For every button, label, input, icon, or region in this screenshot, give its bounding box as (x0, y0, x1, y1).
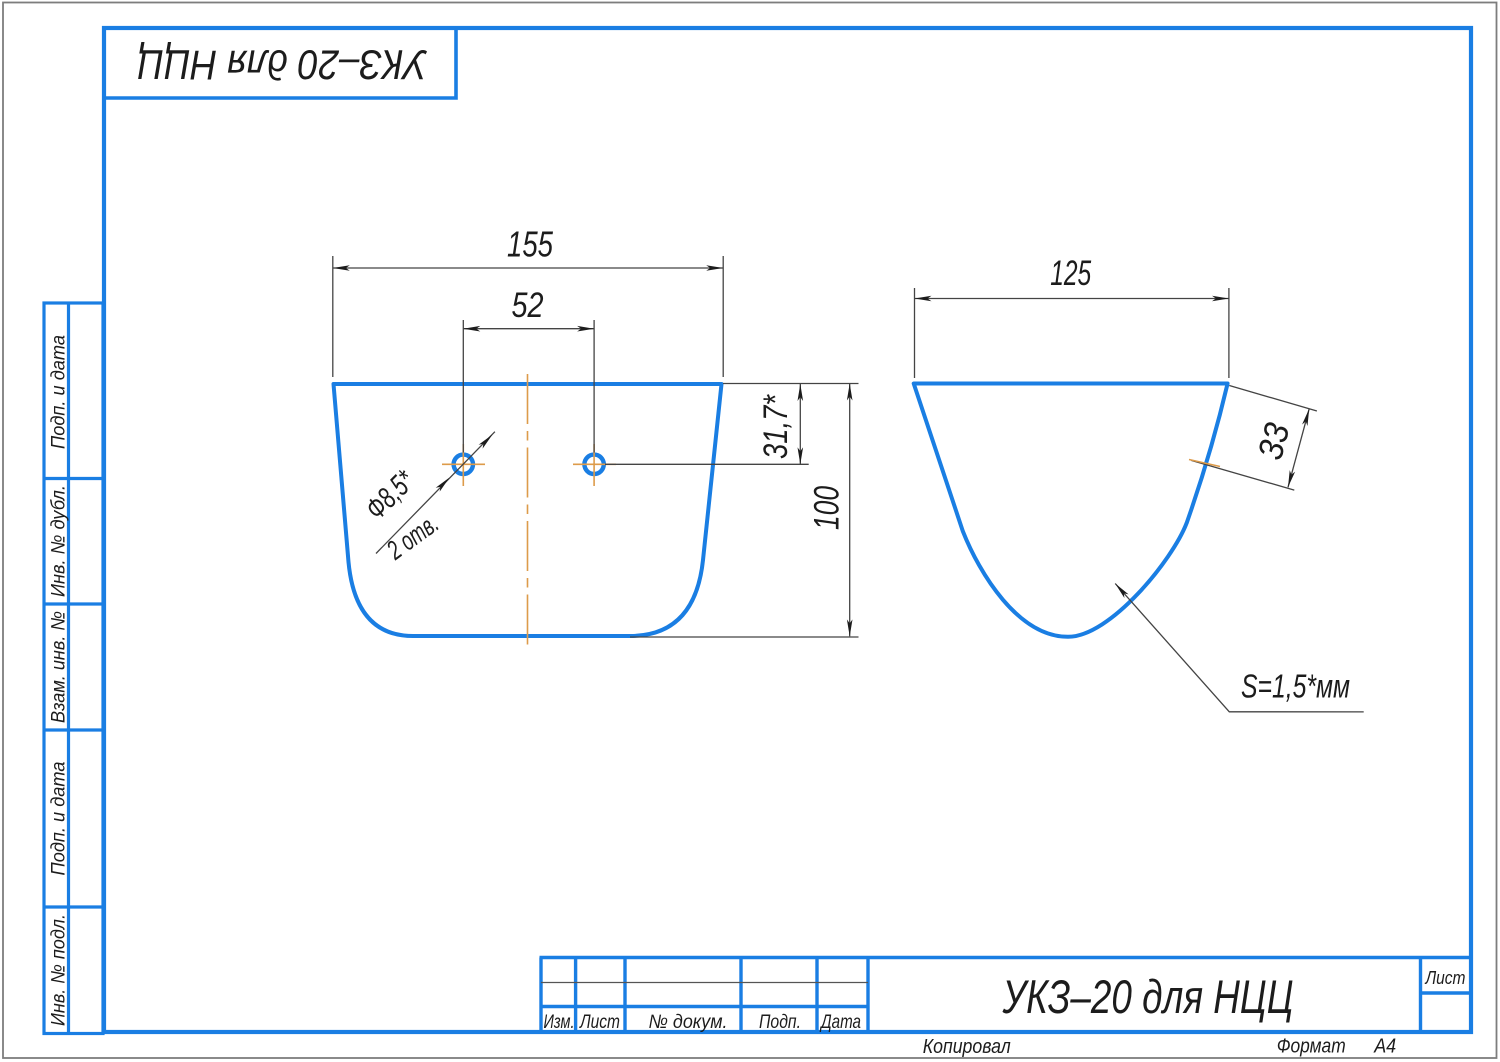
svg-text:31,7*: 31,7* (757, 394, 795, 459)
svg-text:Дата: Дата (819, 1011, 861, 1033)
svg-text:52: 52 (512, 286, 544, 325)
svg-text:S=1,5*мм: S=1,5*мм (1241, 668, 1350, 705)
svg-text:Изм.: Изм. (544, 1011, 575, 1033)
svg-text:Лист: Лист (578, 1011, 620, 1033)
svg-text:№ докум.: № докум. (649, 1011, 728, 1033)
svg-text:155: 155 (507, 224, 554, 265)
svg-text:УКЗ–20 для НЦЦ: УКЗ–20 для НЦЦ (137, 42, 428, 89)
svg-text:100: 100 (808, 486, 847, 530)
svg-text:Подп.: Подп. (759, 1011, 801, 1033)
svg-text:Лист: Лист (1425, 967, 1466, 988)
svg-text:УКЗ–20 для НЦЦ: УКЗ–20 для НЦЦ (1002, 970, 1294, 1023)
svg-text:Взам. инв. №: Взам. инв. № (48, 611, 70, 723)
svg-text:125: 125 (1050, 254, 1091, 293)
svg-text:Копировал: Копировал (923, 1036, 1011, 1058)
svg-text:Инв. № подл.: Инв. № подл. (48, 914, 70, 1026)
svg-text:Инв. № дубл.: Инв. № дубл. (48, 485, 70, 597)
svg-text:А4: А4 (1373, 1036, 1396, 1058)
svg-text:Подп. и дата: Подп. и дата (48, 335, 70, 449)
svg-text:Формат: Формат (1277, 1036, 1346, 1058)
svg-text:Подп. и дата: Подп. и дата (48, 761, 70, 875)
